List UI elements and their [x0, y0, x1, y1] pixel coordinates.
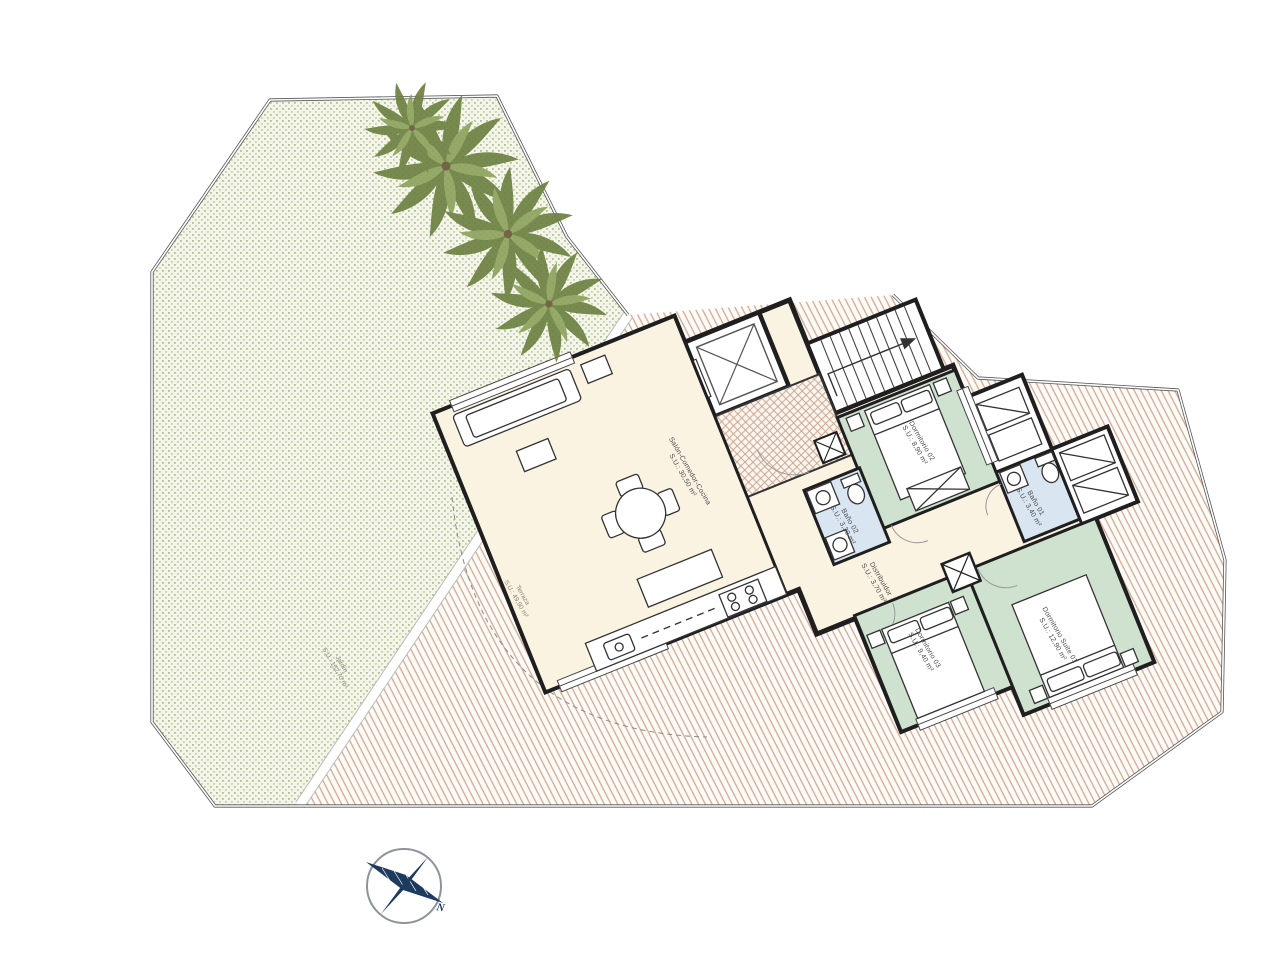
floor-plan-page: Salón-Comedor-CocinaS.U.: 30,50 m² Dormi… — [0, 0, 1280, 960]
floor-plan-canvas: Salón-Comedor-CocinaS.U.: 30,50 m² Dormi… — [0, 0, 1280, 960]
